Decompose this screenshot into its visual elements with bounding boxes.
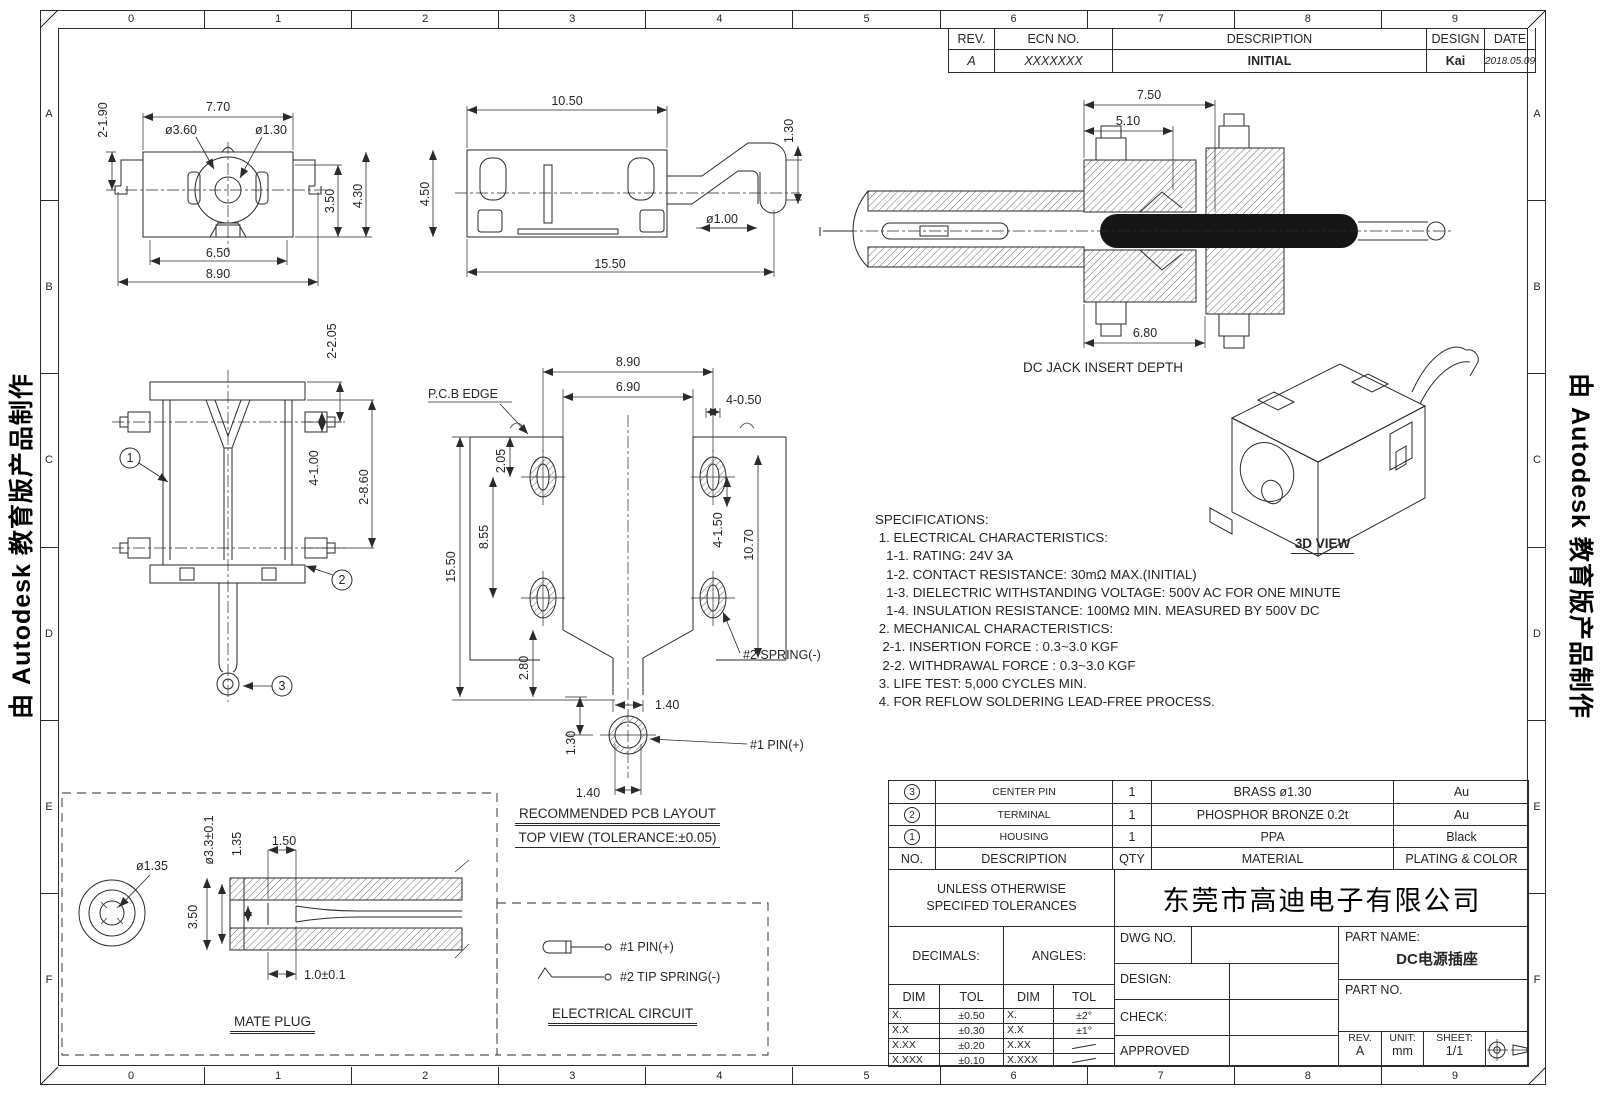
pcb-edge-label: P.C.B EDGE — [428, 387, 498, 401]
dim-side-height: 4.50 — [418, 182, 432, 206]
dec-tol: ±0.30 — [939, 1023, 1003, 1038]
unit-cell: UNIT: mm — [1381, 1031, 1423, 1067]
circuit-caption: ELECTRICAL CIRCUIT — [540, 1006, 705, 1026]
pcb-caption-title: RECOMMENDED PCB LAYOUT — [490, 806, 745, 826]
third-angle-projection-icon — [1487, 1038, 1529, 1062]
bom-material: BRASS ø1.30 — [1151, 781, 1393, 803]
circuit-spring-label: #2 TIP SPRING(-) — [620, 970, 720, 984]
spec-line: 2. MECHANICAL CHARACTERISTICS: — [875, 620, 1340, 638]
dim-pcb-slot: 4-1.50 — [711, 512, 725, 547]
dim-front-inner-dia: ø1.30 — [255, 123, 287, 137]
dim-top-c: 2-8.60 — [357, 469, 371, 504]
dwg-no-value — [1191, 926, 1338, 963]
balloon-1: 1 — [127, 451, 134, 465]
ang-dim: X.XXX — [1003, 1053, 1053, 1067]
dim-top-a: 2-2.05 — [325, 323, 339, 358]
dim-side-pin-height: 1.30 — [782, 119, 796, 143]
ang-tol-slash — [1053, 1038, 1114, 1053]
bom-material: PHOSPHOR BRONZE 0.2t — [1151, 803, 1393, 825]
drawing-sheet: 由 Autodesk 教育版产品制作 由 Autodesk 教育版产品制作 01… — [0, 0, 1604, 1094]
dim-side-length: 15.50 — [594, 257, 625, 271]
tolerance-note-line2: SPECIFED TOLERANCES — [926, 898, 1076, 915]
bom-balloon: 2 — [889, 803, 935, 825]
spec-line: 3. LIFE TEST: 5,000 CYCLES MIN. — [875, 675, 1340, 693]
tolerance-note: UNLESS OTHERWISE SPECIFED TOLERANCES — [889, 869, 1114, 926]
dec-dim: X.XX — [889, 1038, 939, 1053]
bom-desc: CENTER PIN — [935, 781, 1112, 803]
dim-pcb-length: 15.50 — [444, 551, 458, 582]
view-front: 7.70 6.50 8.90 3.50 4.30 2-1.90 ø3.60 ø1… — [96, 100, 372, 286]
ang-tol-slash — [1053, 1053, 1114, 1067]
description-header: DESCRIPTION — [1113, 28, 1427, 50]
tol-header: TOL — [1053, 984, 1114, 1008]
dec-tol: ±0.50 — [939, 1008, 1003, 1023]
angles-label: ANGLES: — [1003, 926, 1114, 984]
sheet-cell: SHEET: 1/1 — [1423, 1031, 1485, 1067]
description-value: INITIAL — [1113, 50, 1427, 73]
bom-balloon: 3 — [889, 781, 935, 803]
dim-mate-outer-dia: ø3.3±0.1 — [202, 815, 216, 864]
bom-plating: Au — [1393, 781, 1529, 803]
decimals-label: DECIMALS: — [889, 926, 1003, 984]
dim-pcb-inner-span: 6.90 — [616, 380, 640, 394]
unit-value: mm — [1382, 1044, 1423, 1058]
dim-mate-tip-dia: ø1.35 — [136, 859, 168, 873]
design-header: DESIGN — [1427, 28, 1485, 50]
ecn-value: XXXXXXX — [995, 50, 1113, 73]
part-name-value: DC电源插座 — [1345, 948, 1529, 969]
dim-pcb-span: 10.70 — [742, 529, 756, 560]
bom-desc-header: DESCRIPTION — [935, 847, 1112, 869]
rev-cell: REV. A — [1338, 1031, 1381, 1067]
spec-line: 1-3. DIELECTRIC WITHSTANDING VOLTAGE: 50… — [875, 584, 1340, 602]
bom-material: PPA — [1151, 825, 1393, 847]
bom-material-header: MATERIAL — [1151, 847, 1393, 869]
dim-front-total-width: 8.90 — [206, 267, 230, 281]
view-side: 10.50 4.50 15.50 ø1.00 1.30 — [418, 94, 802, 277]
dec-tol: ±0.10 — [939, 1053, 1003, 1067]
projection-cell — [1485, 1031, 1529, 1067]
part-name-cell: PART NAME: DC电源插座 — [1338, 926, 1529, 979]
tol-header: TOL — [939, 984, 1003, 1008]
dim-pcb-funnel: 2.80 — [517, 656, 531, 680]
pcb-pin-label: #1 PIN(+) — [750, 738, 804, 752]
company-name: 东莞市高迪电子有限公司 — [1114, 869, 1529, 926]
date-header: DATE — [1485, 28, 1536, 50]
dim-front-total-height: 4.30 — [351, 184, 365, 208]
spec-line: 1. ELECTRICAL CHARACTERISTICS: — [875, 529, 1340, 547]
dim-front-top-width: 7.70 — [206, 100, 230, 114]
bom-qty: 1 — [1112, 781, 1151, 803]
dim-mate-dia: 3.50 — [186, 905, 200, 929]
bom-balloon: 1 — [889, 825, 935, 847]
balloon-3: 3 — [279, 679, 286, 693]
spec-line: 2-1. INSERTION FORCE : 0.3~3.0 KGF — [875, 638, 1340, 656]
dim-top-b: 4-1.00 — [307, 450, 321, 485]
dec-tol: ±0.20 — [939, 1038, 1003, 1053]
dim-header: DIM — [889, 984, 939, 1008]
bom-plating: Au — [1393, 803, 1529, 825]
sheet-label: SHEET: — [1424, 1032, 1485, 1044]
signoff-values — [1229, 963, 1338, 1067]
dec-dim: X.X — [889, 1023, 939, 1038]
dim-pcb-slot-width: 1.40 — [655, 698, 679, 712]
pcb-caption-subtitle: TOP VIEW (TOLERANCE:±0.05) — [490, 830, 745, 848]
bom-desc: HOUSING — [935, 825, 1112, 847]
specifications: SPECIFICATIONS: 1. ELECTRICAL CHARACTERI… — [875, 511, 1340, 711]
dim-pcb-pitch: 8.55 — [477, 525, 491, 549]
unit-label: UNIT: — [1382, 1032, 1423, 1044]
dim-pcb-pin-width: 1.40 — [576, 786, 600, 800]
ang-dim: X. — [1003, 1008, 1053, 1023]
spec-line: 4. FOR REFLOW SOLDERING LEAD-FREE PROCES… — [875, 693, 1340, 711]
dim-front-legs: 2-1.90 — [96, 102, 110, 137]
dim-mate-depth: 1.0±0.1 — [304, 968, 346, 982]
mate-plug-caption: MATE PLUG — [200, 1014, 345, 1034]
bom-qty: 1 — [1112, 803, 1151, 825]
view-circuit: #1 PIN(+) #2 TIP SPRING(-) — [538, 940, 720, 984]
dim-mate-recess: 1.50 — [272, 834, 296, 848]
dim-pcb-pin-offset: 1.30 — [564, 731, 578, 755]
spec-line: 1-4. INSULATION RESISTANCE: 100MΩ MIN. M… — [875, 602, 1340, 620]
rev-value: A — [1339, 1044, 1381, 1058]
rev-label: REV. — [1339, 1032, 1381, 1044]
title-block: 3 CENTER PIN 1 BRASS ø1.30 Au 2 TERMINAL… — [888, 780, 1529, 1067]
spec-line: 2-2. WITHDRAWAL FORCE : 0.3~3.0 KGF — [875, 657, 1340, 675]
rev-value: A — [949, 50, 995, 73]
dim-header: DIM — [1003, 984, 1053, 1008]
dim-pcb-pad-width: 4-0.50 — [726, 393, 761, 407]
date-value: 2018.05.09 — [1485, 50, 1536, 73]
dim-side-top-width: 10.50 — [551, 94, 582, 108]
ang-tol: ±1° — [1053, 1023, 1114, 1038]
dim-section-bottom: 6.80 — [1133, 326, 1157, 340]
dim-side-pin-dia: ø1.00 — [706, 212, 738, 226]
bom-qty: 1 — [1112, 825, 1151, 847]
spec-line: 1-2. CONTACT RESISTANCE: 30mΩ MAX.(INITI… — [875, 566, 1340, 584]
ang-tol: ±2° — [1053, 1008, 1114, 1023]
tolerance-note-line1: UNLESS OTHERWISE — [937, 881, 1066, 898]
spec-line: 1-1. RATING: 24V 3A — [875, 547, 1340, 565]
dim-front-outer-dia: ø3.60 — [165, 123, 197, 137]
sheet-value: 1/1 — [1424, 1044, 1485, 1058]
part-no-label: PART NO. — [1338, 979, 1529, 1031]
balloon-2: 2 — [339, 573, 346, 587]
ang-dim: X.X — [1003, 1023, 1053, 1038]
bom-plating: Black — [1393, 825, 1529, 847]
dim-front-inner-width: 6.50 — [206, 246, 230, 260]
section-caption: DC JACK INSERT DEPTH — [1023, 360, 1183, 375]
ecn-header: ECN NO. — [995, 28, 1113, 50]
pcb-spring-label: #2 SPRING(-) — [743, 648, 821, 662]
dec-dim: X. — [889, 1008, 939, 1023]
bom-desc: TERMINAL — [935, 803, 1112, 825]
spec-line: SPECIFICATIONS: — [875, 511, 1340, 529]
dim-section-total: 7.50 — [1137, 88, 1161, 102]
circuit-pin-label: #1 PIN(+) — [620, 940, 674, 954]
dim-section-mid: 5.10 — [1116, 114, 1140, 128]
view-top: 1 2 3 2-2.05 4-1.00 2-8.60 — [112, 323, 374, 702]
dim-pcb-top-offset: 2.05 — [494, 449, 508, 473]
dim-pcb-pad-span: 8.90 — [616, 355, 640, 369]
dim-mate-inner-h: 1.35 — [230, 832, 244, 856]
design-value: Kai — [1427, 50, 1485, 73]
part-name-label: PART NAME: — [1345, 930, 1529, 944]
dwg-no-label: DWG NO. — [1114, 926, 1191, 963]
ang-dim: X.XX — [1003, 1038, 1053, 1053]
bom-qty-header: QTY — [1112, 847, 1151, 869]
bom-plating-header: PLATING & COLOR — [1393, 847, 1529, 869]
dec-dim: X.XXX — [889, 1053, 939, 1067]
dim-front-inner-height: 3.50 — [323, 189, 337, 213]
view-section: 7.50 5.10 6.80 DC JACK INSERT DEPTH — [820, 88, 1452, 375]
rev-header: REV. — [949, 28, 995, 50]
bom-no-header: NO. — [889, 847, 935, 869]
revision-table: REV. ECN NO. DESCRIPTION DESIGN DATE A X… — [948, 28, 1528, 73]
view-pcb-layout: P.C.B EDGE 8.90 6.90 4-0.50 2.05 8.55 15… — [428, 355, 821, 800]
